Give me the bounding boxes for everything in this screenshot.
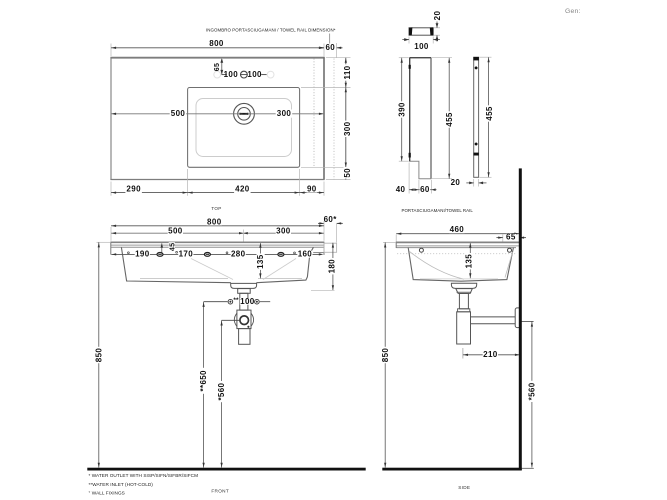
svg-text:20: 20 — [433, 11, 442, 21]
svg-text:TOP: TOP — [211, 206, 221, 211]
svg-text:* WATER OUTLET WITH SISP/SIFN/: * WATER OUTLET WITH SISP/SIFN/SIFBR/SIFC… — [89, 473, 199, 478]
svg-text:420: 420 — [235, 185, 250, 194]
svg-text:500: 500 — [171, 109, 186, 118]
svg-text:160: 160 — [298, 250, 313, 259]
svg-text:110: 110 — [343, 65, 352, 79]
svg-text:135: 135 — [256, 254, 265, 269]
svg-text:65: 65 — [214, 63, 221, 72]
svg-text:PORTASCIUGAMANI/TOWEL RAIL: PORTASCIUGAMANI/TOWEL RAIL — [401, 208, 473, 213]
svg-text:**: ** — [233, 297, 239, 304]
svg-text:**650: **650 — [199, 370, 208, 392]
svg-text:SIDE: SIDE — [458, 485, 470, 490]
svg-text:60*: 60* — [324, 215, 338, 224]
svg-text:850: 850 — [381, 348, 390, 363]
svg-text:**WATER INLET (HOT-COLD): **WATER INLET (HOT-COLD) — [89, 482, 154, 487]
svg-text:170: 170 — [179, 250, 194, 259]
svg-text:210: 210 — [483, 350, 498, 359]
svg-text:*560: *560 — [217, 382, 226, 400]
svg-text:455: 455 — [445, 112, 454, 127]
svg-text:100: 100 — [240, 297, 255, 306]
svg-text:455: 455 — [485, 106, 494, 121]
svg-text:100: 100 — [247, 70, 262, 79]
svg-text:190: 190 — [135, 250, 150, 259]
svg-text:800: 800 — [209, 39, 224, 48]
svg-text:50: 50 — [343, 168, 352, 178]
svg-text:45: 45 — [167, 242, 176, 251]
svg-text:300: 300 — [276, 227, 291, 236]
svg-text:300: 300 — [277, 109, 292, 118]
svg-text:60: 60 — [420, 185, 430, 194]
svg-text:*560: *560 — [528, 382, 537, 400]
svg-text:FRONT: FRONT — [211, 489, 229, 494]
svg-text:300: 300 — [343, 121, 352, 136]
svg-text:135: 135 — [465, 254, 474, 269]
svg-text:90: 90 — [307, 185, 317, 194]
svg-text:100: 100 — [224, 70, 239, 79]
svg-text:850: 850 — [94, 348, 103, 363]
svg-text:390: 390 — [397, 102, 406, 117]
svg-text:800: 800 — [207, 218, 222, 227]
svg-text:40: 40 — [396, 185, 406, 194]
svg-text:500: 500 — [168, 227, 183, 236]
svg-text:Gen:: Gen: — [565, 8, 581, 15]
svg-text:460: 460 — [450, 225, 465, 234]
svg-text:100: 100 — [414, 42, 429, 51]
svg-text:60: 60 — [325, 43, 335, 52]
svg-text:INGOMBRO PORTASCIUGAMANI / TOW: INGOMBRO PORTASCIUGAMANI / TOWEL RAIL DI… — [206, 28, 336, 33]
svg-text:180: 180 — [327, 259, 336, 274]
svg-text:280: 280 — [231, 250, 246, 259]
svg-text:20: 20 — [451, 178, 461, 187]
svg-text:290: 290 — [126, 185, 141, 194]
svg-text:65: 65 — [506, 233, 516, 242]
svg-text:° WALL FIXINGS: ° WALL FIXINGS — [89, 491, 125, 496]
